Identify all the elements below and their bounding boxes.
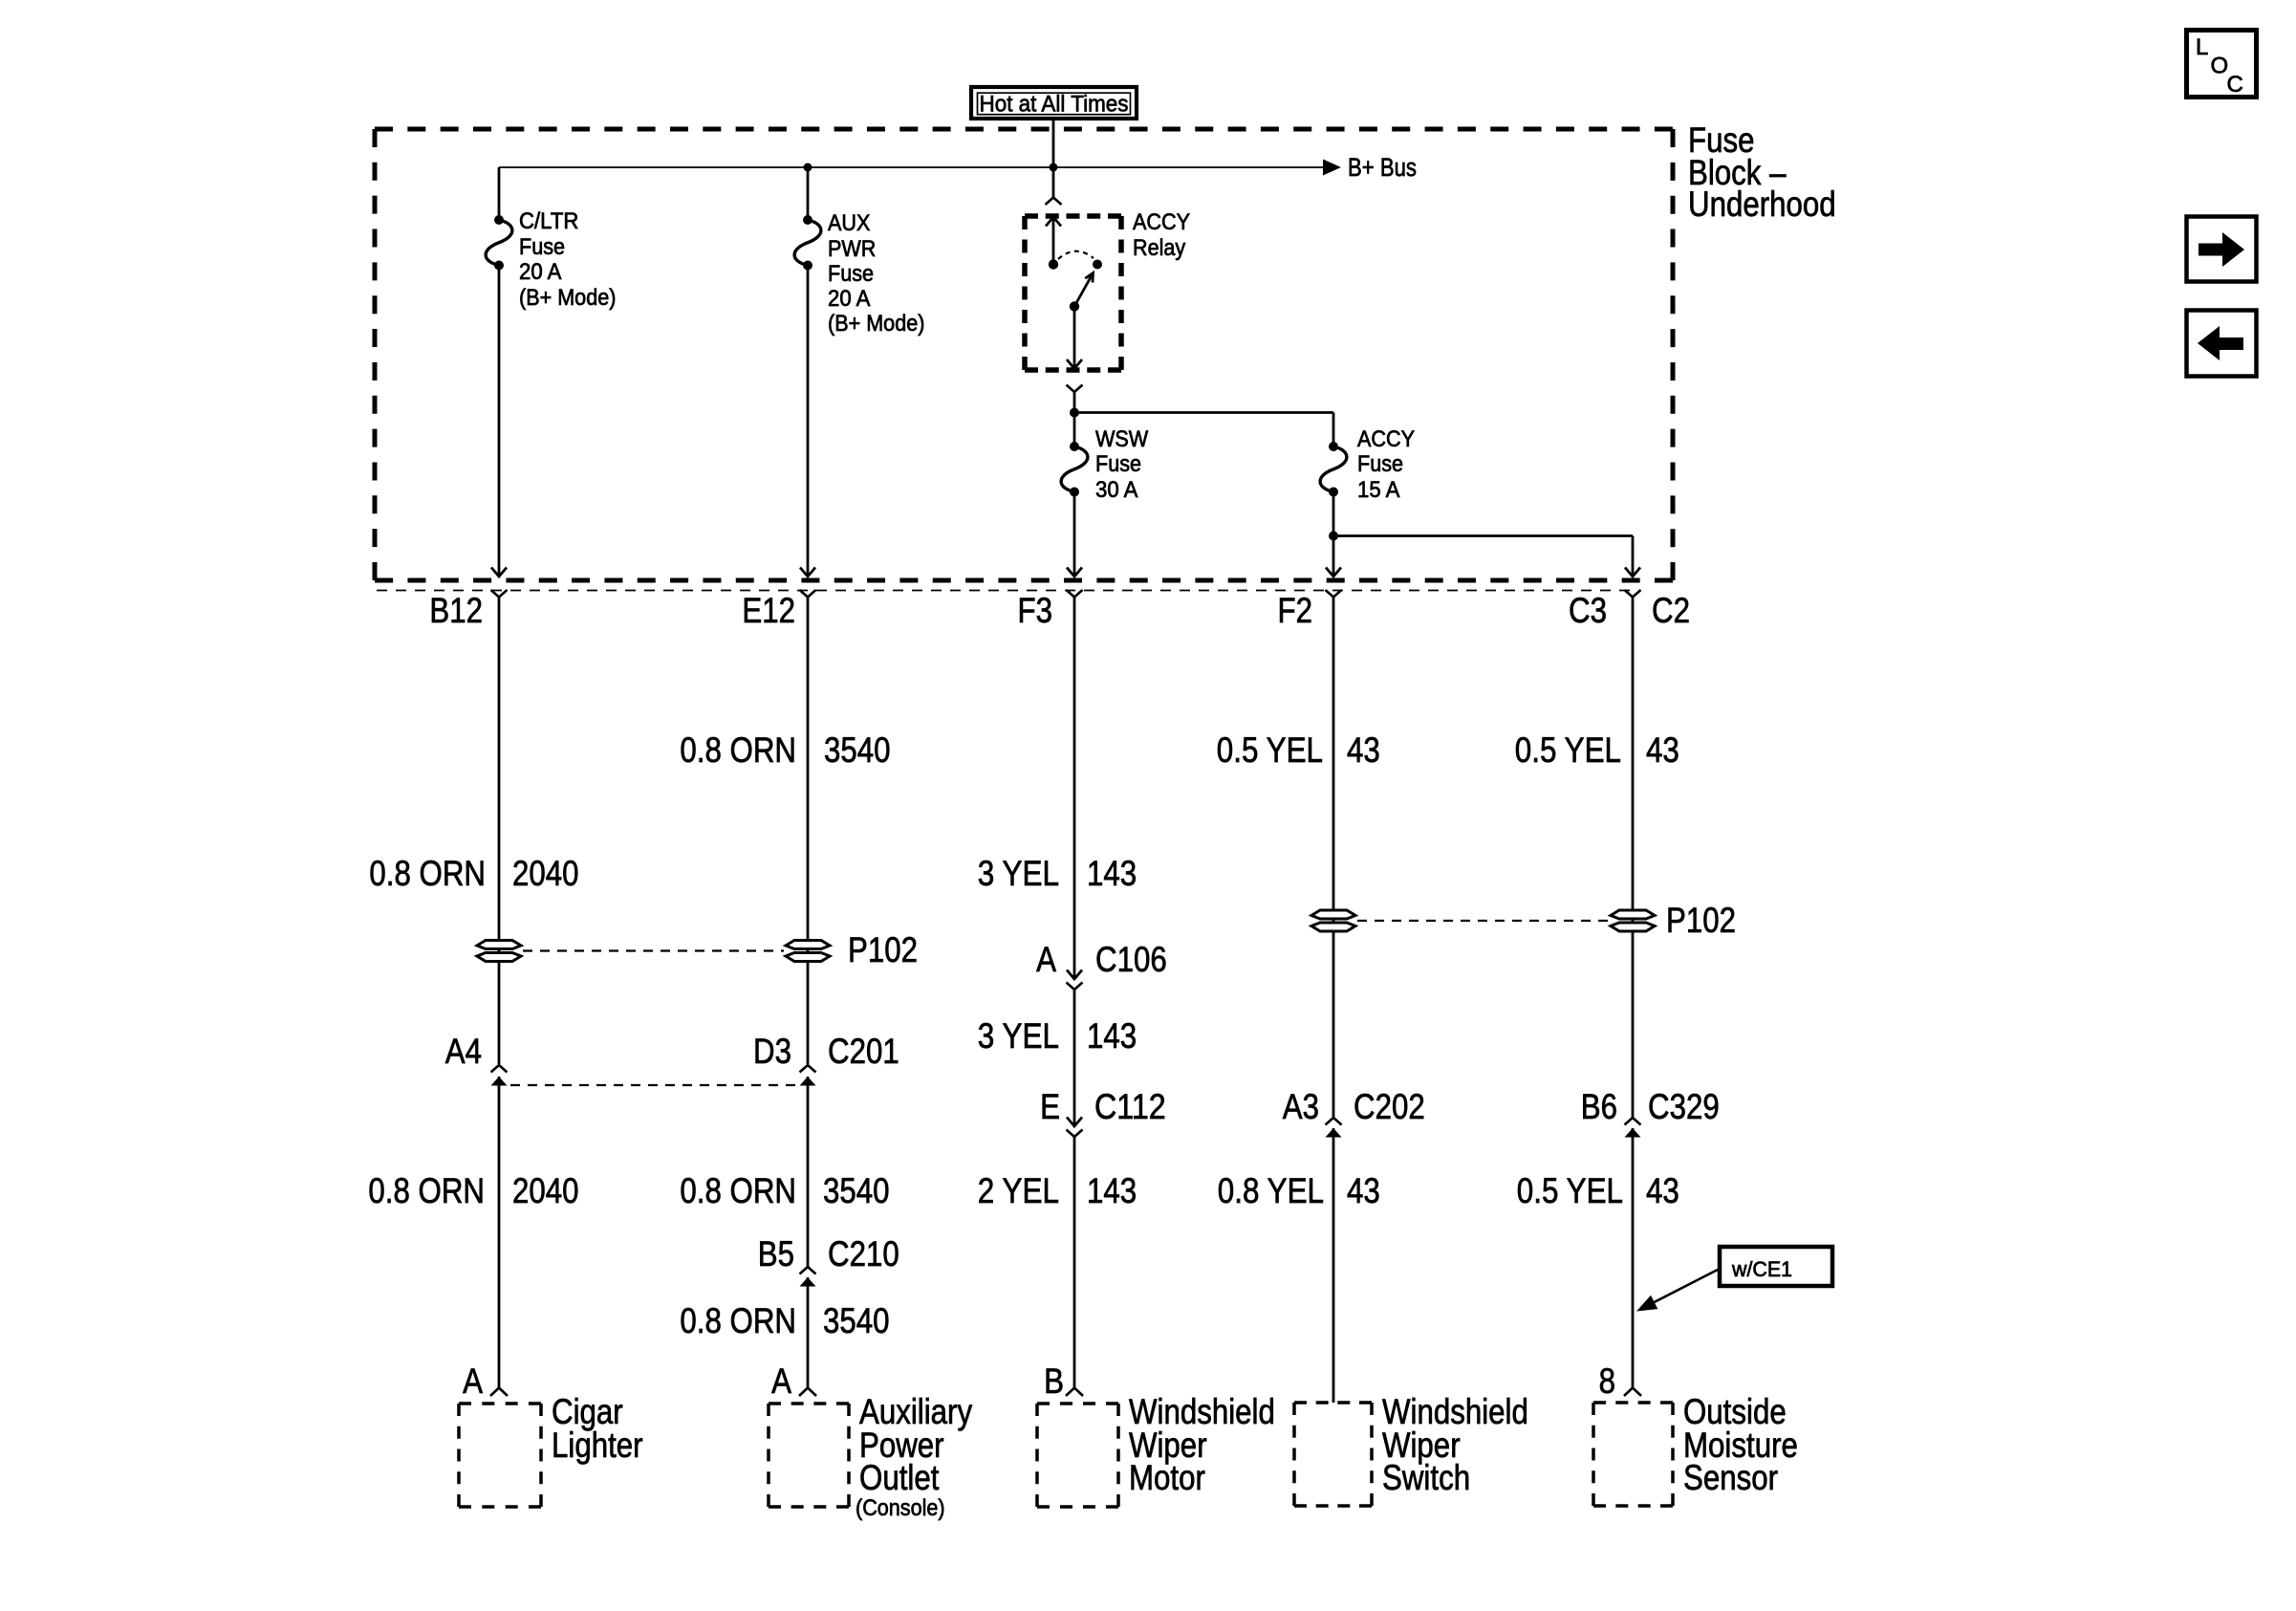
svg-text:A4: A4 [445,1032,482,1071]
svg-text:Underhood: Underhood [1688,185,1836,224]
svg-text:C106: C106 [1095,940,1167,979]
svg-text:0.5 YEL: 0.5 YEL [1517,1171,1623,1210]
svg-text:Fuse: Fuse [1357,451,1403,477]
svg-text:C202: C202 [1354,1087,1425,1126]
svg-text:143: 143 [1087,854,1137,893]
svg-text:Fuse: Fuse [1095,451,1141,477]
svg-text:B+ Bus: B+ Bus [1348,153,1417,182]
svg-text:B: B [1044,1361,1064,1401]
svg-text:E12: E12 [742,591,795,630]
svg-text:Fuse: Fuse [828,261,874,287]
svg-text:0.8 YEL: 0.8 YEL [1218,1171,1324,1210]
svg-text:C2: C2 [1652,591,1690,630]
svg-text:2040: 2040 [512,1171,579,1210]
svg-text:P102: P102 [1666,901,1736,940]
svg-text:(B+ Mode): (B+ Mode) [519,285,616,311]
svg-text:0.5 YEL: 0.5 YEL [1515,730,1621,770]
svg-text:143: 143 [1087,1016,1137,1056]
svg-text:Sensor: Sensor [1683,1458,1778,1497]
svg-text:F3: F3 [1018,591,1053,630]
svg-text:A3: A3 [1283,1087,1319,1126]
svg-text:(B+ Mode): (B+ Mode) [828,311,924,337]
svg-text:A: A [1036,940,1056,979]
svg-text:Fuse: Fuse [519,234,565,260]
svg-text:C210: C210 [828,1234,899,1274]
svg-text:3 YEL: 3 YEL [978,854,1059,893]
svg-text:15 A: 15 A [1357,477,1399,503]
svg-text:A: A [771,1361,791,1401]
svg-text:Motor: Motor [1129,1458,1205,1497]
svg-text:Switch: Switch [1382,1458,1470,1497]
svg-text:w/CE1: w/CE1 [1731,1257,1792,1281]
svg-text:L: L [2196,34,2208,60]
svg-text:43: 43 [1646,730,1679,770]
svg-text:P102: P102 [848,930,918,969]
svg-text:B6: B6 [1581,1087,1617,1126]
svg-text:C/LTR: C/LTR [519,208,578,234]
svg-text:143: 143 [1087,1171,1137,1210]
svg-text:20 A: 20 A [828,286,870,312]
svg-text:AUX: AUX [828,210,870,236]
svg-text:C112: C112 [1094,1087,1166,1126]
svg-text:C201: C201 [828,1032,899,1071]
svg-text:0.5 YEL: 0.5 YEL [1217,730,1323,770]
svg-text:PWR: PWR [828,236,876,262]
svg-text:20 A: 20 A [519,259,561,285]
svg-text:43: 43 [1347,730,1380,770]
svg-text:43: 43 [1347,1171,1380,1210]
svg-text:C: C [2227,72,2243,98]
svg-text:ACCY: ACCY [1133,209,1190,235]
svg-text:C329: C329 [1648,1087,1720,1126]
svg-text:WSW: WSW [1095,426,1149,452]
svg-text:3540: 3540 [823,1171,890,1210]
svg-text:F2: F2 [1278,591,1313,630]
svg-text:Lighter: Lighter [552,1426,643,1465]
svg-text:3 YEL: 3 YEL [978,1016,1059,1056]
svg-text:43: 43 [1646,1171,1679,1210]
svg-text:B12: B12 [429,591,483,630]
svg-text:0.8 ORN: 0.8 ORN [680,1301,796,1340]
svg-text:E: E [1040,1087,1060,1126]
svg-text:0.8 ORN: 0.8 ORN [369,854,486,893]
svg-text:C3: C3 [1569,591,1607,630]
svg-text:0.8 ORN: 0.8 ORN [368,1171,485,1210]
svg-text:B5: B5 [758,1234,794,1274]
svg-text:Relay: Relay [1133,235,1185,261]
svg-text:A: A [463,1361,483,1401]
svg-text:3540: 3540 [824,730,891,770]
svg-text:0.8 ORN: 0.8 ORN [680,1171,796,1210]
svg-text:Outlet: Outlet [859,1458,940,1497]
svg-text:ACCY: ACCY [1357,426,1415,452]
svg-text:2 YEL: 2 YEL [978,1171,1059,1210]
svg-text:D3: D3 [753,1032,791,1071]
svg-text:O: O [2211,54,2229,79]
svg-text:Hot at All Times: Hot at All Times [980,91,1129,117]
svg-text:8: 8 [1599,1361,1615,1401]
svg-text:30 A: 30 A [1095,477,1137,503]
svg-text:2040: 2040 [512,854,579,893]
svg-text:3540: 3540 [823,1301,890,1340]
svg-text:(Console): (Console) [856,1495,945,1521]
svg-text:0.8 ORN: 0.8 ORN [680,730,796,770]
